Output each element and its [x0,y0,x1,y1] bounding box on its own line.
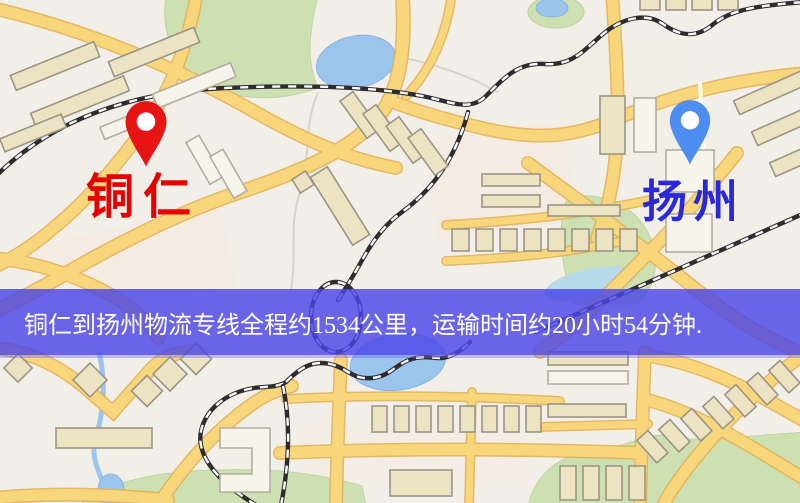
destination-pin-icon [664,98,716,166]
destination-city-label: 扬州 [642,180,744,225]
route-info-banner: 铜仁到扬州物流专线全程约1534公里，运输时间约20小时54分钟. [0,289,800,355]
map-screenshot: 铜仁 扬州 铜仁到扬州物流专线全程约1534公里，运输时间约20小时54分钟. [0,0,800,503]
origin-city-label: 铜仁 [86,174,200,222]
origin-pin-icon [120,99,172,168]
route-info-text: 铜仁到扬州物流专线全程约1534公里，运输时间约20小时54分钟. [24,305,702,340]
map-canvas [0,0,800,503]
